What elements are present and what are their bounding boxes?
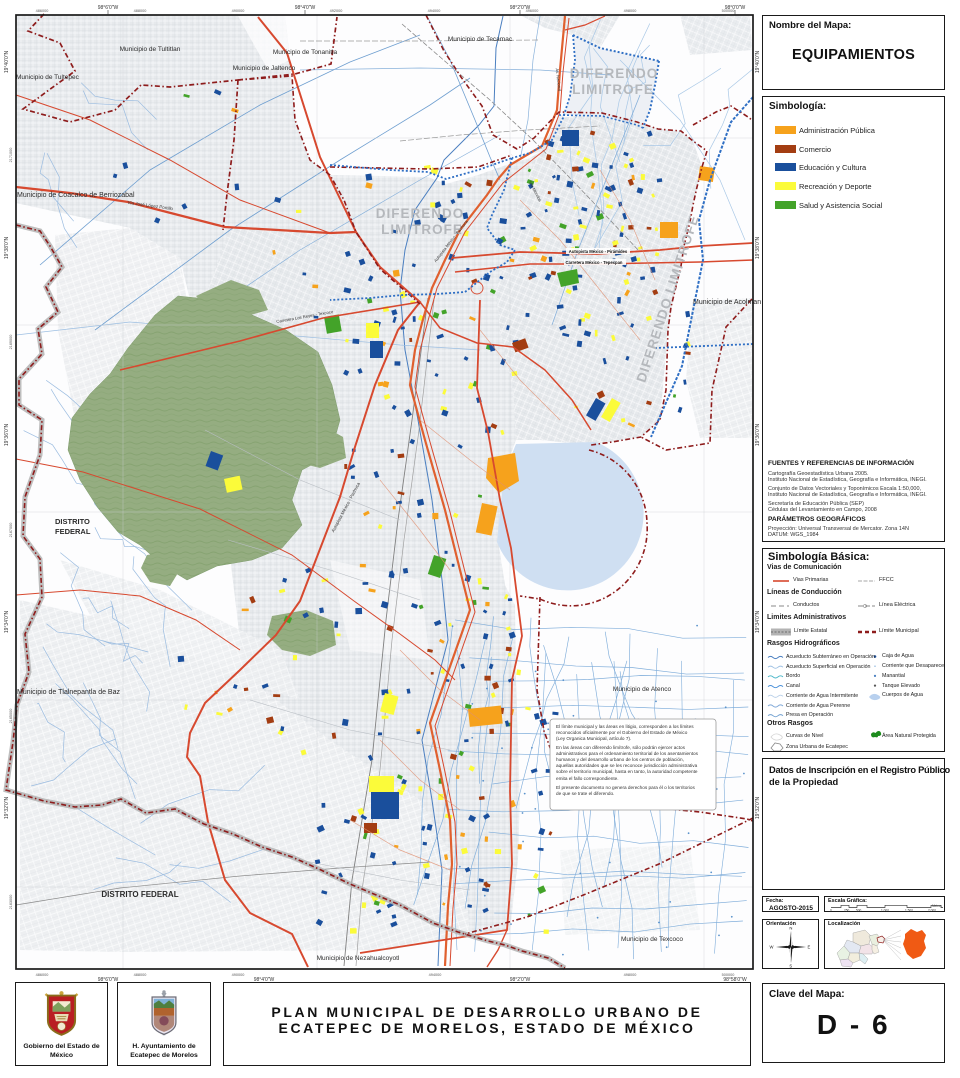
svg-text:19°34'0"N: 19°34'0"N	[755, 610, 761, 633]
svg-text:E: E	[808, 945, 811, 950]
svg-text:19°40'0"N: 19°40'0"N	[4, 50, 10, 73]
svg-text:19°38'0"N: 19°38'0"N	[755, 236, 761, 259]
svg-text:2171000: 2171000	[9, 148, 13, 163]
svg-text:administrativos para el ordena: administrativos para el ordenamiento ter…	[556, 751, 699, 756]
svg-text:DISTRITO: DISTRITO	[55, 517, 90, 526]
svg-text:500000: 500000	[722, 973, 735, 977]
svg-text:500: 500	[856, 909, 862, 912]
svg-text:2167000: 2167000	[9, 523, 13, 538]
svg-text:DIFERENDO: DIFERENDO	[570, 66, 659, 81]
svg-text:DIFERENDO: DIFERENDO	[376, 206, 465, 221]
svg-text:LIMITROFE: LIMITROFE	[381, 222, 463, 237]
svg-text:El límite municipal y las área: El límite municipal y las áreas en litig…	[556, 724, 694, 729]
svg-text:1,500: 1,500	[905, 909, 913, 912]
svg-text:LIMITROFE: LIMITROFE	[572, 82, 654, 97]
svg-text:2169000: 2169000	[9, 335, 13, 350]
svg-text:Municipio de Tultepec: Municipio de Tultepec	[16, 74, 80, 81]
svg-text:Carretera México - Tepexpan: Carretera México - Tepexpan	[566, 260, 623, 265]
svg-text:Metros: Metros	[932, 904, 942, 908]
svg-text:19°32'0"N: 19°32'0"N	[755, 796, 761, 819]
svg-text:humanos y del desarrollo urban: humanos y del desarrollo urbano de los c…	[556, 757, 684, 762]
svg-text:reconocidos oficialmente por e: reconocidos oficialmente por el Gobierno…	[556, 730, 688, 735]
svg-text:Municipio de Acolman: Municipio de Acolman	[693, 299, 761, 306]
svg-text:2163000: 2163000	[9, 895, 13, 910]
svg-text:488000: 488000	[134, 9, 147, 13]
svg-text:sobre el territorio municipal,: sobre el territorio municipal, hasta en …	[556, 769, 698, 774]
svg-text:emita el fallo correspondiente: emita el fallo correspondiente.	[556, 776, 619, 781]
svg-text:En las áreas con diferendo lim: En las áreas con diferendo limítrofe, só…	[556, 745, 686, 750]
svg-text:2165000: 2165000	[9, 709, 13, 724]
svg-text:Municipio de Tultitlan: Municipio de Tultitlan	[120, 46, 181, 53]
svg-text:Municipio de Texcoco: Municipio de Texcoco	[621, 936, 683, 943]
svg-text:2,000: 2,000	[928, 909, 936, 912]
svg-text:DISTRITO FEDERAL: DISTRITO FEDERAL	[101, 890, 178, 899]
svg-text:El presente documento no gener: El presente documento no genera derechos…	[556, 785, 696, 790]
svg-text:500000: 500000	[722, 9, 735, 13]
svg-text:Municipio de Atenco: Municipio de Atenco	[613, 686, 672, 693]
svg-text:19°36'0"N: 19°36'0"N	[755, 423, 761, 446]
svg-text:19°32'0"N: 19°32'0"N	[4, 796, 10, 819]
svg-text:496000: 496000	[526, 9, 539, 13]
svg-text:N: N	[789, 927, 792, 931]
svg-text:1,000: 1,000	[881, 909, 889, 912]
svg-text:W: W	[770, 945, 774, 950]
svg-text:490000: 490000	[232, 973, 245, 977]
svg-text:de que se trate el diferendo.: de que se trate el diferendo.	[556, 791, 614, 796]
svg-text:486000: 486000	[36, 973, 49, 977]
svg-text:19°34'0"N: 19°34'0"N	[4, 610, 10, 633]
svg-text:Municipio de Jaltenco: Municipio de Jaltenco	[233, 65, 296, 72]
svg-text:498000: 498000	[624, 973, 637, 977]
svg-text:FEDERAL: FEDERAL	[55, 527, 91, 536]
svg-text:Municipio de Coacalco de Berri: Municipio de Coacalco de Berriozabal	[17, 192, 135, 199]
svg-text:486000: 486000	[36, 9, 49, 13]
svg-text:S: S	[789, 964, 792, 969]
svg-text:(Ley Organica Municipal, artíc: (Ley Organica Municipal, artículo 7).	[556, 736, 631, 741]
svg-text:Autopista México - Pirámides: Autopista México - Pirámides	[569, 249, 628, 254]
svg-text:19°40'0"N: 19°40'0"N	[755, 50, 761, 73]
svg-text:aquellas autoridades que se le: aquellas autoridades que se les reconoce…	[556, 763, 698, 768]
svg-text:19°38'0"N: 19°38'0"N	[4, 236, 10, 259]
svg-text:Municipio de Tonanitla: Municipio de Tonanitla	[273, 49, 338, 56]
svg-text:Municipio de Tecamac: Municipio de Tecamac	[448, 36, 513, 43]
svg-text:19°36'0"N: 19°36'0"N	[4, 423, 10, 446]
svg-text:494000: 494000	[428, 9, 441, 13]
svg-text:250: 250	[844, 909, 850, 912]
svg-text:498000: 498000	[624, 9, 637, 13]
svg-text:494000: 494000	[429, 973, 442, 977]
svg-text:492000: 492000	[330, 9, 343, 13]
svg-text:Municipio de Tlalnepantla de B: Municipio de Tlalnepantla de Baz	[17, 689, 120, 696]
svg-text:490000: 490000	[232, 9, 245, 13]
svg-text:0: 0	[830, 909, 832, 912]
svg-text:488000: 488000	[134, 973, 147, 977]
svg-text:Municipio de Nezahualcoyotl: Municipio de Nezahualcoyotl	[317, 955, 400, 962]
